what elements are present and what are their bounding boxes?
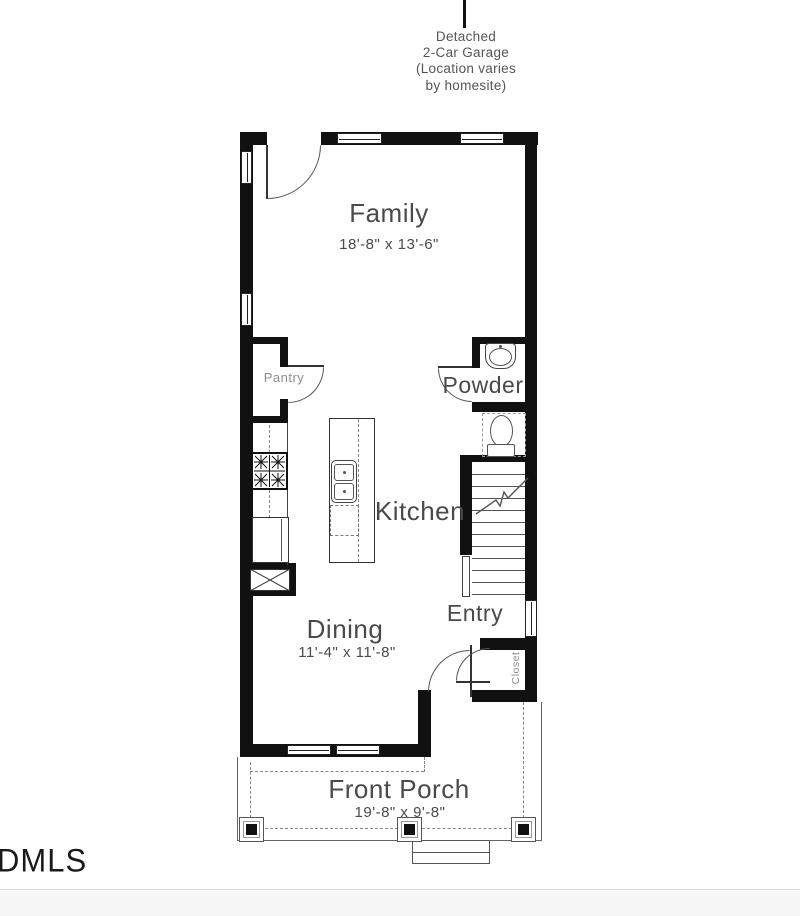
garage-note: Detached 2-Car Garage (Location varies b… — [416, 29, 516, 94]
porch-column — [511, 817, 536, 842]
island-overhang-line — [358, 419, 359, 562]
porch-roofline — [265, 828, 398, 829]
closet-door-panel — [456, 681, 490, 683]
window — [241, 293, 252, 326]
stair-direction-arrow — [472, 470, 532, 520]
stove — [251, 452, 288, 490]
floor-plan: Detached 2-Car Garage (Location varies b… — [0, 0, 800, 916]
porch-roofline — [422, 828, 512, 829]
stair-railing — [462, 556, 470, 597]
room-label-entry: Entry — [447, 602, 503, 625]
stair-tread — [472, 534, 525, 535]
bottom-strip — [0, 889, 800, 916]
porch-roofline — [250, 771, 424, 772]
wall-powder-left — [472, 344, 480, 368]
porch-slab-edge — [237, 757, 238, 841]
porch-roofline — [523, 702, 524, 828]
wall-powder-divider — [472, 402, 537, 412]
stair-tread — [472, 594, 525, 595]
sink-drain — [343, 471, 346, 474]
wall-pantry-bottom — [253, 416, 288, 423]
sink-drain — [343, 490, 346, 493]
watermark: DMLS — [0, 842, 87, 880]
toilet-bowl — [490, 415, 513, 447]
dishwasher — [330, 505, 359, 536]
wall-left — [240, 132, 253, 757]
window — [525, 600, 537, 637]
window — [241, 151, 252, 184]
porch-step-line — [412, 852, 490, 853]
room-dims-dining: 11'-4" x 11'-8" — [298, 645, 396, 660]
room-label-powder: Powder — [443, 374, 524, 397]
room-label-pantry: Pantry — [264, 371, 305, 384]
room-label-closet: Closet — [511, 652, 522, 685]
toilet-tank — [487, 444, 515, 457]
faucet-dot — [499, 345, 502, 348]
refrigerator-door-line — [281, 519, 282, 561]
window — [336, 745, 380, 755]
porch-column — [239, 817, 264, 842]
window — [337, 133, 382, 144]
room-dims-front-porch: 19'-8" x 9'-8" — [355, 805, 446, 820]
refrigerator — [252, 517, 289, 563]
chase-x-box — [250, 569, 290, 591]
room-label-dining: Dining — [307, 616, 384, 642]
powder-sink-basin — [489, 348, 512, 366]
stair-tread — [472, 558, 525, 559]
room-label-kitchen: Kitchen — [375, 498, 465, 524]
stair-tread — [472, 570, 525, 571]
wall-pantry-right-upper — [280, 337, 288, 367]
stair-tread — [472, 546, 525, 547]
garage-leader-line — [463, 0, 466, 28]
window — [287, 745, 331, 755]
porch-roofline — [424, 757, 425, 772]
window — [460, 133, 504, 144]
room-dims-family: 18'-8" x 13'-6" — [339, 237, 439, 252]
wall-entry-bottom — [472, 690, 537, 702]
family-door-arc — [267, 145, 321, 199]
stair-tread — [472, 582, 525, 583]
room-label-front-porch: Front Porch — [328, 776, 469, 802]
room-label-family: Family — [349, 200, 429, 226]
stair-tread — [472, 522, 525, 523]
wall-step — [418, 690, 431, 757]
porch-slab-edge — [541, 702, 542, 840]
